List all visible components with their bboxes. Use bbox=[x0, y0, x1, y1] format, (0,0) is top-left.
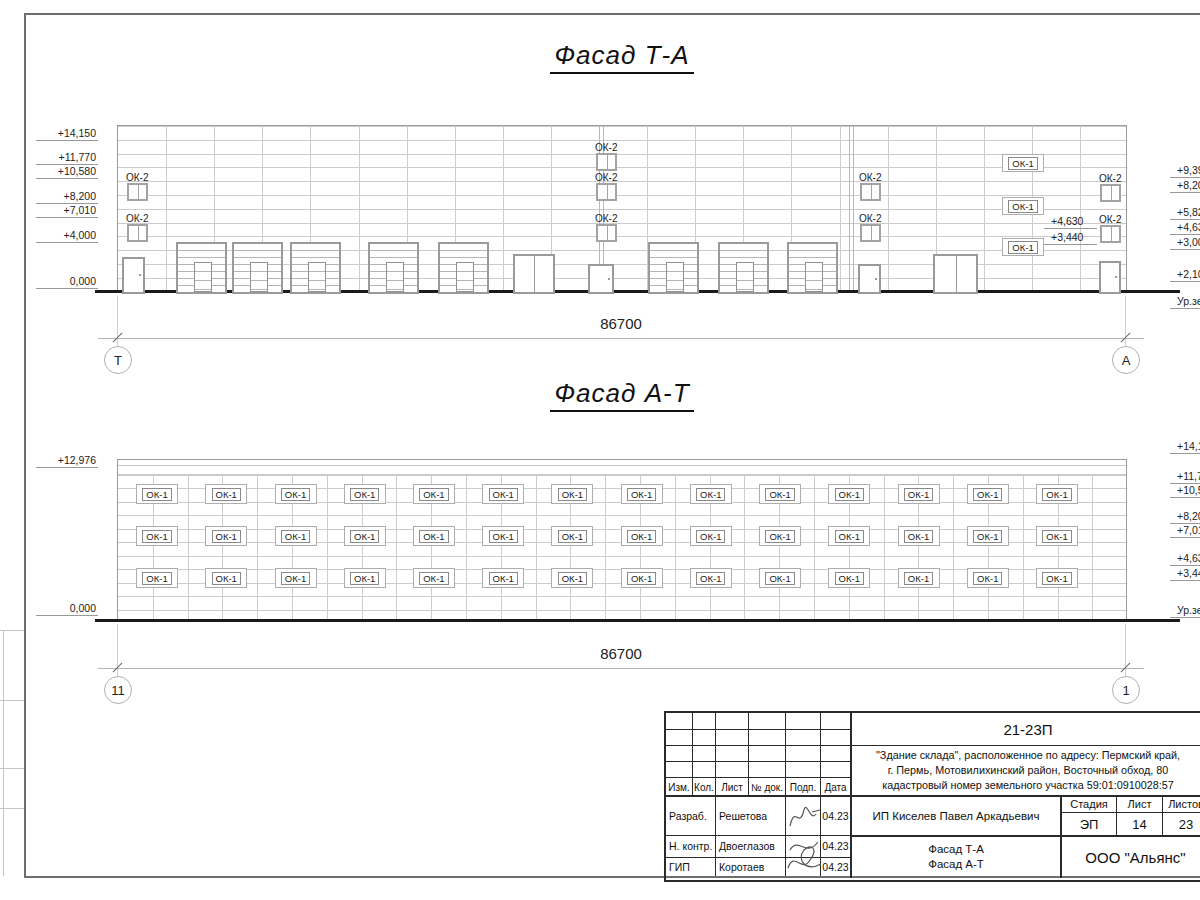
window-ok1-label: ОК-1 bbox=[696, 530, 725, 543]
window-ok1: ОК-1 bbox=[759, 568, 801, 588]
entrance-door bbox=[1099, 261, 1121, 294]
wicket-door bbox=[805, 262, 823, 292]
window-ok2 bbox=[596, 224, 617, 242]
window-mullion bbox=[871, 226, 872, 240]
window-ok1: ОК-1 bbox=[759, 526, 801, 546]
garage-door bbox=[368, 242, 419, 294]
panel-joint-line bbox=[605, 475, 606, 620]
window-mullion bbox=[138, 185, 139, 199]
panel-joint-line bbox=[503, 126, 504, 291]
panel-joint-line bbox=[675, 475, 676, 620]
window-ok2 bbox=[596, 153, 617, 171]
row-date: 04.23 bbox=[821, 797, 850, 835]
drawing-title-cell: Фасад Т-А Фасад А-Т bbox=[852, 837, 1060, 877]
panel-joint-line bbox=[1080, 126, 1081, 291]
signature-razrab bbox=[786, 796, 822, 834]
window-ok1-label: ОК-1 bbox=[350, 488, 379, 501]
window-ok2-label: ОК-2 bbox=[126, 213, 149, 224]
description-line: кадастровый номер земельного участка 59:… bbox=[882, 778, 1173, 793]
window-ok1: ОК-1 bbox=[1036, 484, 1078, 504]
margin-table-line bbox=[0, 630, 24, 631]
double-entrance-door bbox=[933, 254, 978, 294]
window-mullion bbox=[1111, 227, 1112, 241]
panel-joint-line bbox=[984, 126, 985, 291]
window-ok1-label: ОК-1 bbox=[489, 572, 518, 585]
signature-gip bbox=[784, 834, 824, 878]
window-ok1: ОК-1 bbox=[828, 526, 870, 546]
window-ok1: ОК-1 bbox=[551, 484, 593, 504]
wicket-door bbox=[386, 262, 404, 292]
elevation-mark: +7,01 bbox=[1170, 524, 1200, 538]
entrance-door bbox=[588, 264, 614, 294]
window-ok1: ОК-1 bbox=[275, 568, 317, 588]
margin-table-line bbox=[0, 808, 24, 809]
panel-joint-line bbox=[814, 475, 815, 620]
row-date: 04.23 bbox=[821, 858, 850, 876]
window-mullion bbox=[871, 185, 872, 199]
door-handle bbox=[139, 274, 141, 276]
door-leaf-divider bbox=[956, 256, 957, 292]
window-ok1: ОК-1 bbox=[344, 484, 386, 504]
garage-door bbox=[648, 242, 699, 294]
window-ok2-label: ОК-2 bbox=[595, 142, 618, 153]
dimension-value: 86700 bbox=[117, 315, 1125, 332]
panel-joint-line bbox=[166, 126, 167, 291]
window-ok1-label: ОК-1 bbox=[350, 572, 379, 585]
window-ok1-label: ОК-1 bbox=[627, 572, 656, 585]
window-ok1-label: ОК-1 bbox=[904, 572, 933, 585]
frame-top-line bbox=[24, 13, 1200, 15]
window-ok2 bbox=[127, 183, 148, 201]
dimension-value: 86700 bbox=[117, 645, 1125, 662]
window-ok1: ОК-1 bbox=[205, 526, 247, 546]
door-handle bbox=[1115, 276, 1117, 278]
elevation-mark: +9,39 bbox=[1170, 164, 1200, 178]
window-ok1-label: ОК-1 bbox=[142, 488, 171, 501]
window-ok2 bbox=[860, 224, 881, 242]
window-ok1: ОК-1 bbox=[344, 568, 386, 588]
window-ok1-label: ОК-1 bbox=[765, 572, 794, 585]
window-ok1-label: ОК-1 bbox=[419, 488, 448, 501]
window-ok1: ОК-1 bbox=[828, 568, 870, 588]
elevation-mark: Ур.зе bbox=[1170, 295, 1200, 309]
elevation-mark: +8,200 bbox=[36, 190, 98, 204]
row-name: Коротаев bbox=[716, 858, 787, 876]
window-ok2-label: ОК-2 bbox=[859, 213, 882, 224]
elevation-mark: +4,63 bbox=[1170, 221, 1200, 235]
margin-table-line bbox=[0, 700, 24, 701]
elevation-mark: +2,10 bbox=[1170, 268, 1200, 282]
window-ok1: ОК-1 bbox=[1002, 154, 1044, 172]
elevation-mark: +10,580 bbox=[36, 165, 98, 179]
window-ok1-label: ОК-1 bbox=[212, 530, 241, 543]
sheet-number: 14 bbox=[1117, 813, 1162, 835]
window-ok1: ОК-1 bbox=[482, 568, 524, 588]
sheets-total: 23 bbox=[1163, 813, 1200, 835]
window-ok1: ОК-1 bbox=[482, 484, 524, 504]
axis-label: 11 bbox=[111, 683, 125, 698]
entrance-door bbox=[858, 264, 881, 294]
wicket-door bbox=[308, 262, 326, 292]
window-ok1-label: ОК-1 bbox=[835, 572, 864, 585]
window-ok1: ОК-1 bbox=[482, 526, 524, 546]
row-name: Решетова bbox=[716, 797, 787, 835]
project-code: 21-23П bbox=[852, 713, 1200, 745]
wicket-door bbox=[250, 262, 268, 292]
axis-label: А bbox=[1122, 353, 1131, 368]
project-description: "Здание склада", расположенное по адресу… bbox=[852, 747, 1200, 794]
window-mullion bbox=[607, 226, 608, 240]
col-header-izm: Изм. bbox=[666, 779, 692, 795]
window-ok1: ОК-1 bbox=[828, 484, 870, 504]
window-ok1-label: ОК-1 bbox=[142, 572, 171, 585]
double-entrance-door bbox=[513, 254, 555, 294]
garage-door bbox=[176, 242, 227, 294]
window-ok1-label: ОК-1 bbox=[627, 488, 656, 501]
expansion-joint-line bbox=[853, 126, 854, 291]
window-ok1: ОК-1 bbox=[967, 484, 1009, 504]
panel-joint-line bbox=[257, 475, 258, 620]
description-line: г. Пермь, Мотовилихинский район, Восточн… bbox=[888, 763, 1169, 778]
panel-joint-line bbox=[396, 475, 397, 620]
window-ok1: ОК-1 bbox=[898, 526, 940, 546]
window-ok1: ОК-1 bbox=[413, 526, 455, 546]
garage-door bbox=[290, 242, 341, 294]
axis-circle-1: 1 bbox=[1112, 676, 1140, 704]
window-ok1-label: ОК-1 bbox=[419, 530, 448, 543]
elevation-mark: +3,00 bbox=[1170, 236, 1200, 250]
facade-ta-title: Фасад Т-А bbox=[117, 40, 1127, 71]
window-ok1-label: ОК-1 bbox=[212, 488, 241, 501]
window-mullion bbox=[1111, 186, 1112, 200]
col-header-kol: Кол. bbox=[693, 779, 715, 795]
window-ok1-label: ОК-1 bbox=[627, 530, 656, 543]
dimension-line bbox=[98, 668, 1144, 669]
wicket-door bbox=[666, 262, 684, 292]
elevation-mark: +14,150 bbox=[36, 127, 98, 141]
window-ok1: ОК-1 bbox=[1036, 568, 1078, 588]
window-ok1-label: ОК-1 bbox=[696, 572, 725, 585]
garage-door bbox=[718, 242, 769, 294]
window-ok1: ОК-1 bbox=[898, 484, 940, 504]
window-ok1-label: ОК-1 bbox=[1008, 241, 1037, 254]
window-ok1-label: ОК-1 bbox=[973, 530, 1002, 543]
elevation-mark: +3,44 bbox=[1170, 567, 1200, 581]
margin-table-line bbox=[3, 630, 4, 876]
elevation-mark: 0,000 bbox=[36, 275, 98, 289]
title-block-line bbox=[666, 729, 850, 730]
axis-circle-t: Т bbox=[104, 346, 132, 374]
elevation-mark: 0,000 bbox=[36, 602, 98, 616]
window-ok1-label: ОК-1 bbox=[558, 488, 587, 501]
row-date: 04.23 bbox=[821, 836, 850, 856]
door-handle bbox=[875, 278, 877, 280]
parapet-line bbox=[118, 465, 1126, 466]
elevation-mark: +11,770 bbox=[36, 151, 98, 165]
window-ok1: ОК-1 bbox=[136, 526, 178, 546]
window-ok1-label: ОК-1 bbox=[904, 530, 933, 543]
elevation-mark: +8,20 bbox=[1170, 510, 1200, 524]
window-ok2-label: ОК-2 bbox=[595, 213, 618, 224]
panel-joint-line bbox=[536, 475, 537, 620]
elevation-mark: +5,82 bbox=[1170, 206, 1200, 220]
panel-joint-line bbox=[359, 126, 360, 291]
window-ok1-label: ОК-1 bbox=[281, 572, 310, 585]
window-ok1-label: ОК-1 bbox=[212, 572, 241, 585]
window-ok2 bbox=[860, 183, 881, 201]
wicket-door bbox=[736, 262, 754, 292]
window-ok1-label: ОК-1 bbox=[281, 530, 310, 543]
panel-joint-line bbox=[840, 126, 841, 291]
elevation-mark: +8,20 bbox=[1170, 179, 1200, 193]
company-name: ООО "Альянс" bbox=[1062, 837, 1200, 877]
window-ok1: ОК-1 bbox=[136, 568, 178, 588]
elevation-mark: +12,976 bbox=[36, 454, 98, 468]
dimension-line bbox=[98, 338, 1144, 339]
window-ok2 bbox=[1100, 225, 1121, 243]
title-block-line bbox=[666, 745, 1200, 746]
axis-circle-11: 11 bbox=[104, 676, 132, 704]
elevation-mark: +4,63 bbox=[1170, 552, 1200, 566]
window-ok1: ОК-1 bbox=[759, 484, 801, 504]
window-ok1-label: ОК-1 bbox=[558, 530, 587, 543]
facade-at-title: Фасад А-Т bbox=[117, 378, 1127, 409]
elevation-mark: +4,000 bbox=[36, 229, 98, 243]
elevation-mark: +10,58 bbox=[1170, 484, 1200, 498]
drawing-sheet: Фасад Т-А ОК-2ОК-2ОК-2ОК-2ОК-2ОК-2ОК-2ОК… bbox=[0, 0, 1200, 900]
garage-door bbox=[787, 242, 838, 294]
window-ok1-label: ОК-1 bbox=[558, 572, 587, 585]
window-ok1: ОК-1 bbox=[967, 526, 1009, 546]
window-ok1-label: ОК-1 bbox=[142, 530, 171, 543]
window-ok1: ОК-1 bbox=[275, 484, 317, 504]
panel-joint-line bbox=[744, 475, 745, 620]
axis-label: 1 bbox=[1122, 683, 1129, 698]
col-header-podp: Подп. bbox=[786, 779, 820, 795]
window-ok1: ОК-1 bbox=[413, 484, 455, 504]
col-header-list: Лист bbox=[716, 779, 748, 795]
window-ok1: ОК-1 bbox=[205, 568, 247, 588]
garage-door bbox=[232, 242, 283, 294]
window-ok1-label: ОК-1 bbox=[1008, 200, 1037, 213]
wicket-door bbox=[194, 262, 212, 292]
door-leaf-divider bbox=[534, 256, 535, 292]
window-mullion bbox=[607, 155, 608, 169]
window-mullion bbox=[607, 185, 608, 199]
window-mullion bbox=[138, 226, 139, 240]
window-ok1-label: ОК-1 bbox=[765, 530, 794, 543]
axis-circle-a: А bbox=[1112, 346, 1140, 374]
window-ok1: ОК-1 bbox=[275, 526, 317, 546]
panel-joint-line bbox=[466, 475, 467, 620]
stage-value: ЭП bbox=[1062, 813, 1116, 835]
row-name: Двоеглазов bbox=[716, 836, 787, 856]
window-ok1-label: ОК-1 bbox=[1042, 530, 1071, 543]
window-ok1-label: ОК-1 bbox=[973, 488, 1002, 501]
elevation-mark: +14,15 bbox=[1170, 440, 1200, 454]
window-ok2 bbox=[127, 224, 148, 242]
stage-header: Стадия bbox=[1062, 795, 1116, 812]
window-ok1: ОК-1 bbox=[621, 526, 663, 546]
panel-joint-line bbox=[327, 475, 328, 620]
elevation-mark: +3,440 bbox=[1044, 231, 1097, 245]
panel-joint-line bbox=[888, 126, 889, 291]
description-line: "Здание склада", расположенное по адресу… bbox=[876, 748, 1180, 763]
frame-left-line bbox=[24, 13, 26, 878]
panel-joint-line bbox=[953, 475, 954, 620]
dimension-extension-line bbox=[1125, 624, 1126, 682]
drawing-name: Фасад Т-А bbox=[928, 842, 984, 857]
window-ok1: ОК-1 bbox=[898, 568, 940, 588]
window-ok1-label: ОК-1 bbox=[489, 488, 518, 501]
garage-door bbox=[438, 242, 489, 294]
window-ok1: ОК-1 bbox=[344, 526, 386, 546]
window-ok1: ОК-1 bbox=[621, 568, 663, 588]
window-ok1: ОК-1 bbox=[1002, 238, 1044, 256]
window-ok1-label: ОК-1 bbox=[1042, 488, 1071, 501]
window-ok1: ОК-1 bbox=[551, 526, 593, 546]
title-block-line bbox=[666, 777, 850, 778]
client-name: ИП Киселев Павел Аркадьевич bbox=[852, 797, 1060, 835]
facade-ta-drawing: ОК-2ОК-2ОК-2ОК-2ОК-2ОК-2ОК-2ОК-2ОК-2ОК-1… bbox=[117, 125, 1127, 292]
entrance-door bbox=[122, 257, 145, 294]
window-ok1-label: ОК-1 bbox=[835, 530, 864, 543]
ground-line bbox=[95, 619, 1180, 622]
col-header-dok: № док. bbox=[749, 779, 785, 795]
col-header-data: Дата bbox=[821, 779, 850, 795]
window-ok1: ОК-1 bbox=[1036, 526, 1078, 546]
window-ok1-label: ОК-1 bbox=[1008, 157, 1037, 170]
window-ok1: ОК-1 bbox=[136, 484, 178, 504]
door-handle bbox=[608, 278, 610, 280]
window-ok2-label: ОК-2 bbox=[1099, 173, 1122, 184]
row-role: ГИП bbox=[666, 858, 717, 876]
window-ok1-label: ОК-1 bbox=[835, 488, 864, 501]
window-ok2-label: ОК-2 bbox=[595, 172, 618, 183]
window-ok1-label: ОК-1 bbox=[973, 572, 1002, 585]
window-ok1: ОК-1 bbox=[205, 484, 247, 504]
window-ok1-label: ОК-1 bbox=[419, 572, 448, 585]
window-ok1-label: ОК-1 bbox=[765, 488, 794, 501]
window-ok1: ОК-1 bbox=[690, 484, 732, 504]
window-ok1-label: ОК-1 bbox=[696, 488, 725, 501]
window-ok1: ОК-1 bbox=[1002, 197, 1044, 215]
sheet-header: Лист bbox=[1117, 795, 1162, 812]
window-ok1: ОК-1 bbox=[621, 484, 663, 504]
expansion-joint-line bbox=[849, 126, 850, 291]
window-ok1-label: ОК-1 bbox=[350, 530, 379, 543]
facade-at-drawing: ОК-1ОК-1ОК-1ОК-1ОК-1ОК-1ОК-1ОК-1ОК-1ОК-1… bbox=[117, 459, 1127, 621]
window-ok1: ОК-1 bbox=[690, 568, 732, 588]
window-ok1: ОК-1 bbox=[690, 526, 732, 546]
panel-joint-line bbox=[884, 475, 885, 620]
elevation-mark: +4,630 bbox=[1044, 215, 1097, 229]
window-ok1: ОК-1 bbox=[413, 568, 455, 588]
elevation-mark: +7,010 bbox=[36, 204, 98, 218]
wicket-door bbox=[456, 262, 474, 292]
window-ok1-label: ОК-1 bbox=[489, 530, 518, 543]
window-ok2 bbox=[1100, 184, 1121, 202]
margin-table-line bbox=[0, 768, 24, 769]
panel-joint-line bbox=[1023, 475, 1024, 620]
panel-joint-line bbox=[188, 475, 189, 620]
axis-label: Т bbox=[114, 353, 122, 368]
window-ok1: ОК-1 bbox=[967, 568, 1009, 588]
window-ok2-label: ОК-2 bbox=[126, 172, 149, 183]
elevation-mark: Ур.зе bbox=[1170, 604, 1200, 618]
window-ok1-label: ОК-1 bbox=[904, 488, 933, 501]
row-role: Разраб. bbox=[666, 797, 717, 835]
window-ok1-label: ОК-1 bbox=[281, 488, 310, 501]
dimension-extension-line bbox=[1125, 296, 1126, 352]
window-ok2 bbox=[596, 183, 617, 201]
window-ok1: ОК-1 bbox=[551, 568, 593, 588]
sheets-header: Листов bbox=[1163, 795, 1200, 812]
panel-joint-line bbox=[1092, 475, 1093, 620]
window-ok2-label: ОК-2 bbox=[859, 172, 882, 183]
window-ok1-label: ОК-1 bbox=[1042, 572, 1071, 585]
window-ok2-label: ОК-2 bbox=[1099, 214, 1122, 225]
drawing-name: Фасад А-Т bbox=[928, 857, 984, 872]
elevation-mark: +11,77 bbox=[1170, 470, 1200, 484]
row-role: Н. контр. bbox=[666, 836, 717, 856]
title-block-line bbox=[666, 761, 850, 762]
